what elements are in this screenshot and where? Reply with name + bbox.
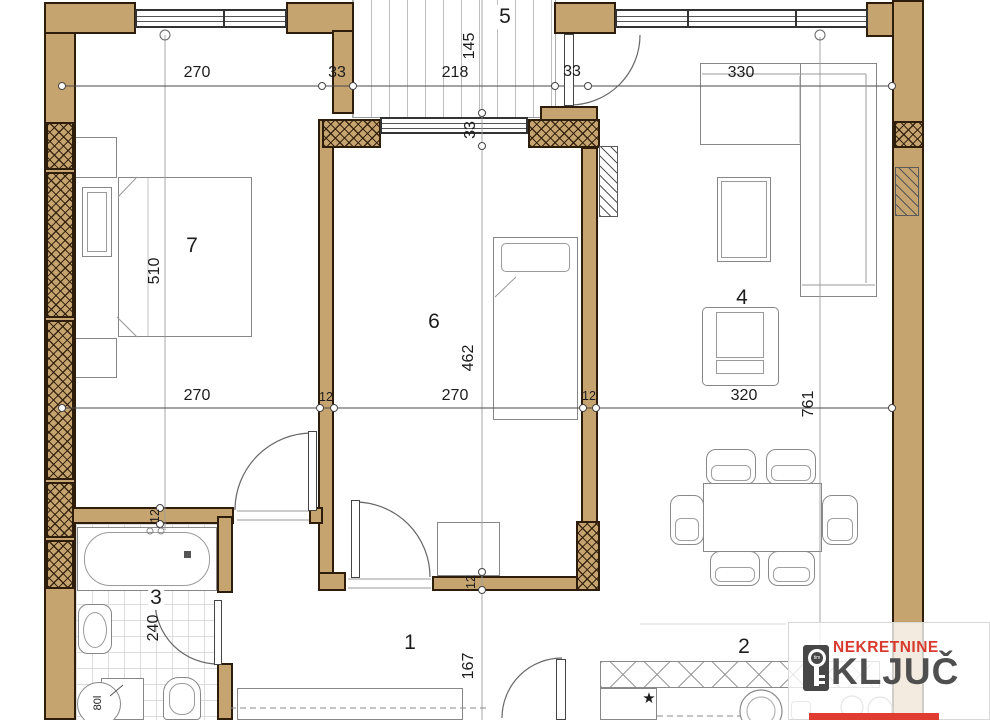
insulation-left: [46, 172, 74, 318]
floor-plan: 5 7 6 4 3 1 2 270 33 218 33 330 270 12 2…: [0, 0, 990, 720]
dim-label: 320: [731, 387, 758, 405]
dim-label: 167: [460, 653, 478, 680]
dim-label: 12: [464, 575, 478, 589]
room-label-2: 2: [738, 635, 750, 659]
dim-label: 33: [328, 64, 346, 82]
hall-closet: [237, 688, 463, 720]
entry-door-arc: [502, 658, 562, 718]
insulation-balcony-right: [528, 119, 600, 148]
dim-label: 462: [460, 345, 478, 372]
bedroom-door-arc: [235, 433, 312, 510]
window-glass-line: [617, 21, 866, 22]
key-tooth: [819, 675, 825, 678]
window-balcony: [380, 117, 528, 134]
wall-room6-corner: [318, 572, 346, 591]
room6-door-leaf: [351, 500, 360, 578]
insulation-balcony-left: [322, 119, 381, 148]
balcony-decking: [352, 0, 556, 118]
dim-label: 12: [319, 390, 333, 404]
corner-sofa-right: [800, 63, 877, 297]
wardrobe: [73, 137, 117, 178]
window-glass-line: [382, 123, 526, 124]
wall-right-exterior: [892, 0, 924, 720]
dim-label: 12: [148, 509, 162, 523]
kitchen-star-icon: ★: [642, 689, 655, 707]
key-tooth: [819, 681, 825, 684]
room-label-7: 7: [186, 234, 198, 258]
dining-table: [703, 483, 822, 552]
sink-basin: [83, 612, 107, 648]
window-tick: [223, 11, 225, 26]
logo-red-bar: [809, 713, 939, 720]
dining-chair: [766, 449, 816, 485]
dim-label: 33: [563, 63, 581, 81]
radiator: [895, 167, 919, 216]
water-heater-label: 80l: [92, 696, 104, 711]
agency-watermark: tim NEKRETNINE KLJUČ: [788, 622, 990, 720]
dim-label: 510: [146, 258, 164, 285]
wall-top-bedroom: [44, 2, 136, 34]
insulation-hall-living: [576, 521, 600, 591]
wall-bath-right-lower: [217, 663, 233, 720]
dining-chair: [670, 495, 704, 545]
dresser-inner: [87, 192, 107, 252]
room-label-3: 3: [148, 586, 164, 610]
window-glass-line: [137, 21, 285, 22]
dim-label: 330: [728, 64, 755, 82]
kitchen-sink: [740, 690, 782, 720]
wall-room6-bottom: [432, 576, 578, 591]
wall-top-living-left: [554, 2, 616, 34]
key-icon: tim: [803, 645, 829, 691]
dim-label: 240: [145, 615, 163, 642]
double-bed: [118, 177, 252, 337]
room6-door-arc: [355, 502, 430, 577]
window-tick: [795, 11, 797, 26]
room-label-6: 6: [428, 310, 440, 334]
window-tick: [687, 11, 689, 26]
room-label-1: 1: [404, 631, 416, 655]
insulation-left: [46, 540, 74, 589]
window-living: [615, 9, 868, 28]
wall-living-hall: [581, 147, 598, 524]
dining-chair: [768, 551, 815, 586]
dim-label: 218: [442, 64, 469, 82]
insulation-left: [46, 320, 74, 480]
insulation-left: [46, 122, 74, 170]
bathroom-door-leaf: [214, 600, 222, 665]
dim-label: 270: [442, 387, 469, 405]
dining-chair: [710, 551, 760, 586]
window-glass-line: [137, 16, 285, 17]
insulation-left: [46, 482, 74, 538]
toilet-bowl: [169, 683, 195, 715]
radiator: [599, 146, 618, 217]
coffee-table-inner: [721, 181, 767, 258]
dim-label: 270: [184, 64, 211, 82]
dim-label: 270: [184, 387, 211, 405]
armchair-seat: [716, 312, 764, 358]
dim-label: 761: [800, 391, 818, 418]
bed-pillow: [501, 243, 570, 272]
dining-chair: [706, 449, 756, 485]
armchair-back: [716, 360, 764, 374]
dim-label: 145: [461, 33, 479, 60]
dining-chair: [822, 495, 858, 545]
bathtub-basin: [84, 532, 210, 586]
cabinet-room6: [437, 522, 500, 576]
bedroom-door-leaf: [308, 431, 317, 511]
wall-bath-right-upper: [217, 516, 233, 593]
window-glass-line: [617, 16, 866, 17]
window-glass-line: [382, 128, 526, 129]
wall-top-living-right: [866, 2, 894, 37]
entry-door-leaf: [556, 659, 566, 720]
dim-label: 12: [582, 389, 596, 403]
dim-label: 33: [462, 121, 480, 139]
room-label-5: 5: [496, 5, 514, 29]
room-label-4: 4: [736, 286, 748, 310]
insulation-right-wall: [894, 121, 924, 148]
window-bedroom: [135, 9, 287, 28]
logo-line2: KLJUČ: [831, 651, 959, 693]
nightstand: [75, 338, 117, 378]
